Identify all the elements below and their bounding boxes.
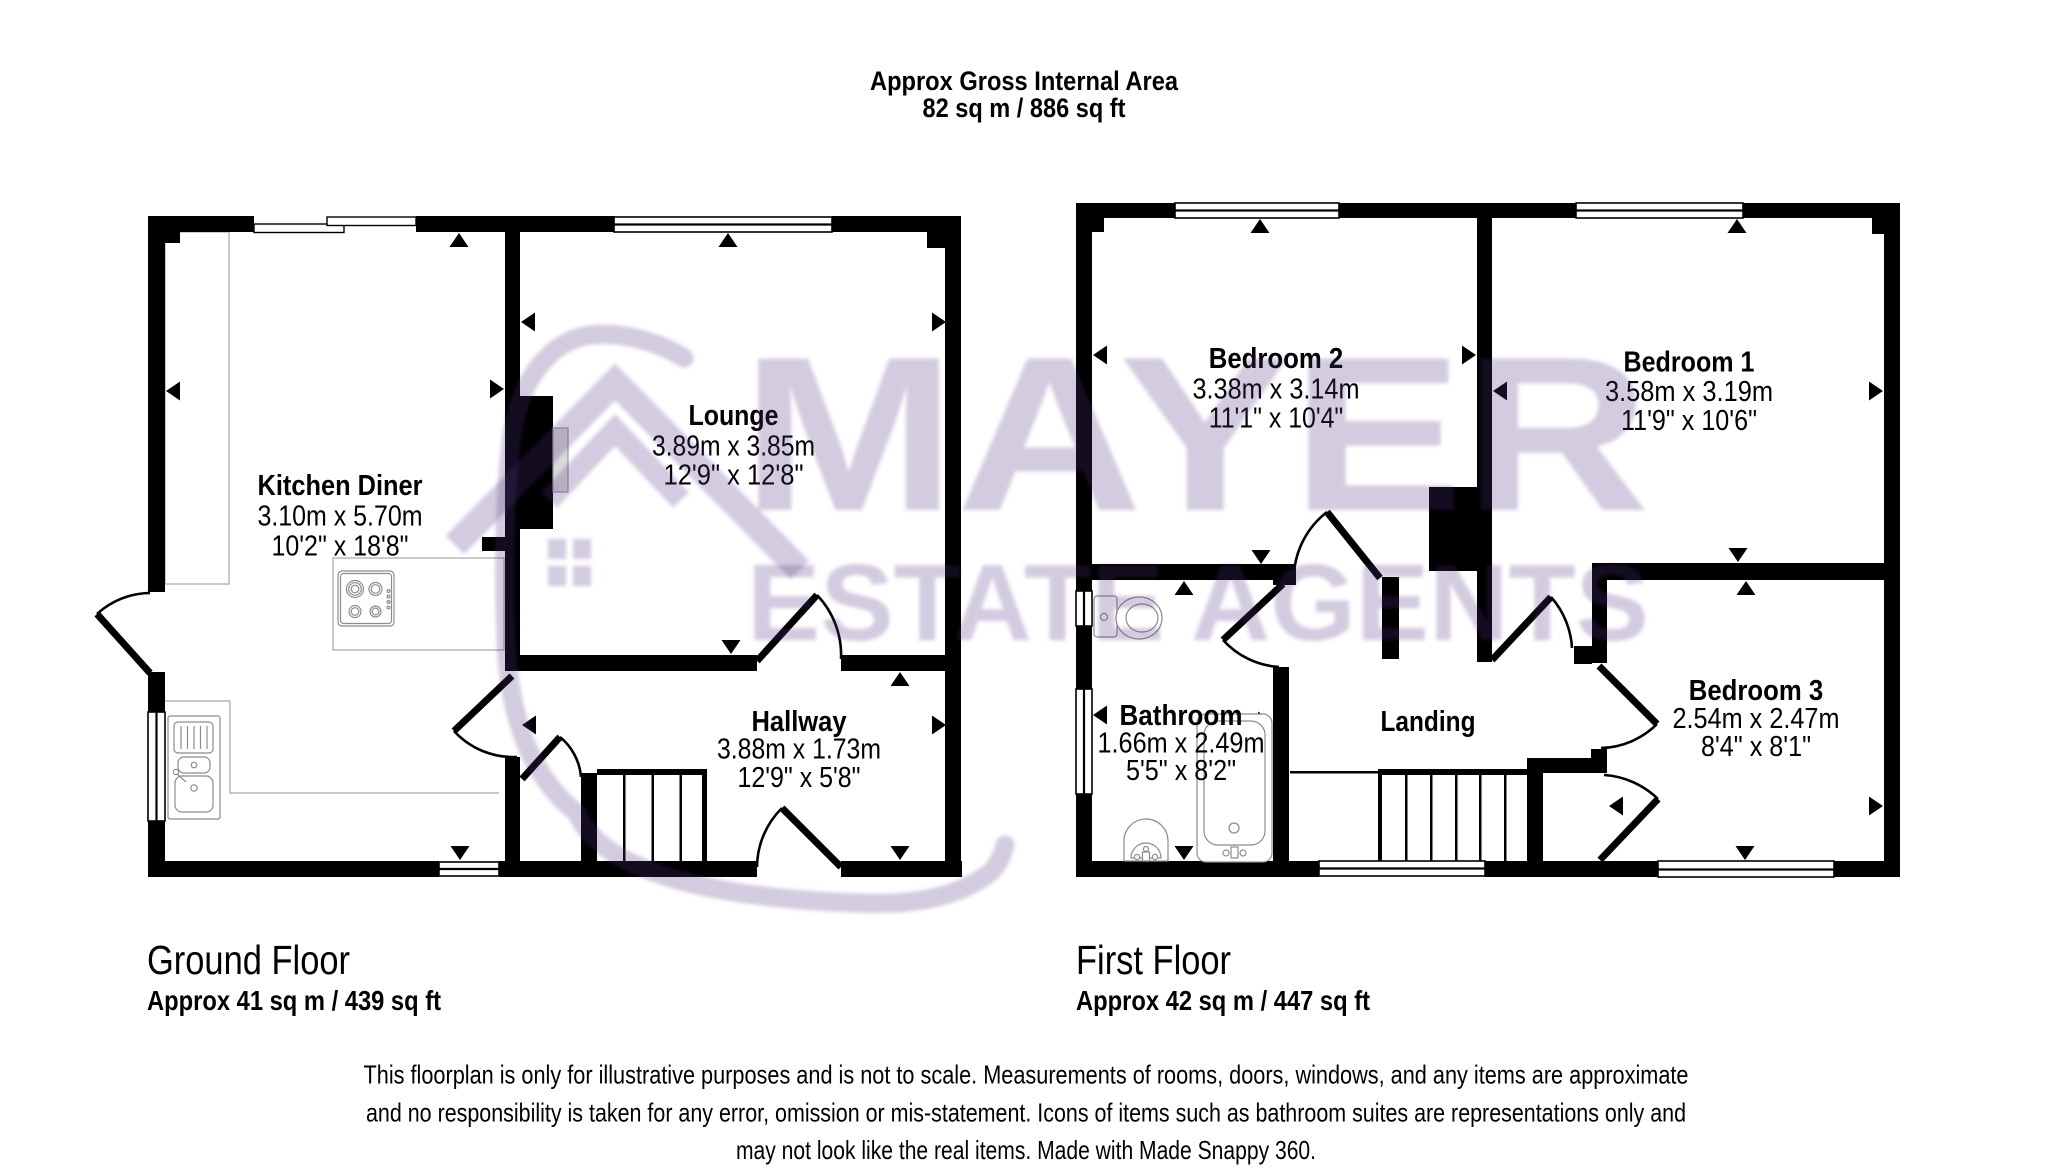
svg-text:Approx 42 sq m / 447 sq ft: Approx 42 sq m / 447 sq ft — [1076, 985, 1370, 1016]
svg-text:82 sq m / 886 sq ft: 82 sq m / 886 sq ft — [923, 93, 1126, 123]
svg-text:First Floor: First Floor — [1076, 937, 1231, 983]
svg-text:5'5" x 8'2": 5'5" x 8'2" — [1126, 755, 1236, 787]
svg-text:3.88m x 1.73m: 3.88m x 1.73m — [717, 734, 881, 766]
svg-text:MAYER: MAYER — [741, 311, 1650, 557]
svg-text:may not look like the real ite: may not look like the real items. Made w… — [736, 1135, 1316, 1165]
svg-text:10'2" x 18'8": 10'2" x 18'8" — [272, 531, 409, 563]
svg-text:and no responsibility is taken: and no responsibility is taken for any e… — [366, 1098, 1686, 1128]
svg-text:3.10m x 5.70m: 3.10m x 5.70m — [258, 501, 423, 533]
svg-text:Ground Floor: Ground Floor — [147, 937, 350, 983]
svg-text:ESTATE AGENTS: ESTATE AGENTS — [747, 542, 1649, 664]
svg-text:Kitchen Diner: Kitchen Diner — [258, 470, 423, 502]
svg-text:Landing: Landing — [1381, 706, 1476, 738]
svg-text:This floorplan is only for ill: This floorplan is only for illustrative … — [364, 1060, 1689, 1090]
svg-text:8'4" x 8'1": 8'4" x 8'1" — [1701, 731, 1811, 763]
svg-text:Approx 41 sq m / 439 sq ft: Approx 41 sq m / 439 sq ft — [147, 985, 441, 1016]
svg-text:12'9" x 5'8": 12'9" x 5'8" — [738, 762, 861, 794]
svg-text:Approx Gross Internal Area: Approx Gross Internal Area — [870, 66, 1179, 96]
